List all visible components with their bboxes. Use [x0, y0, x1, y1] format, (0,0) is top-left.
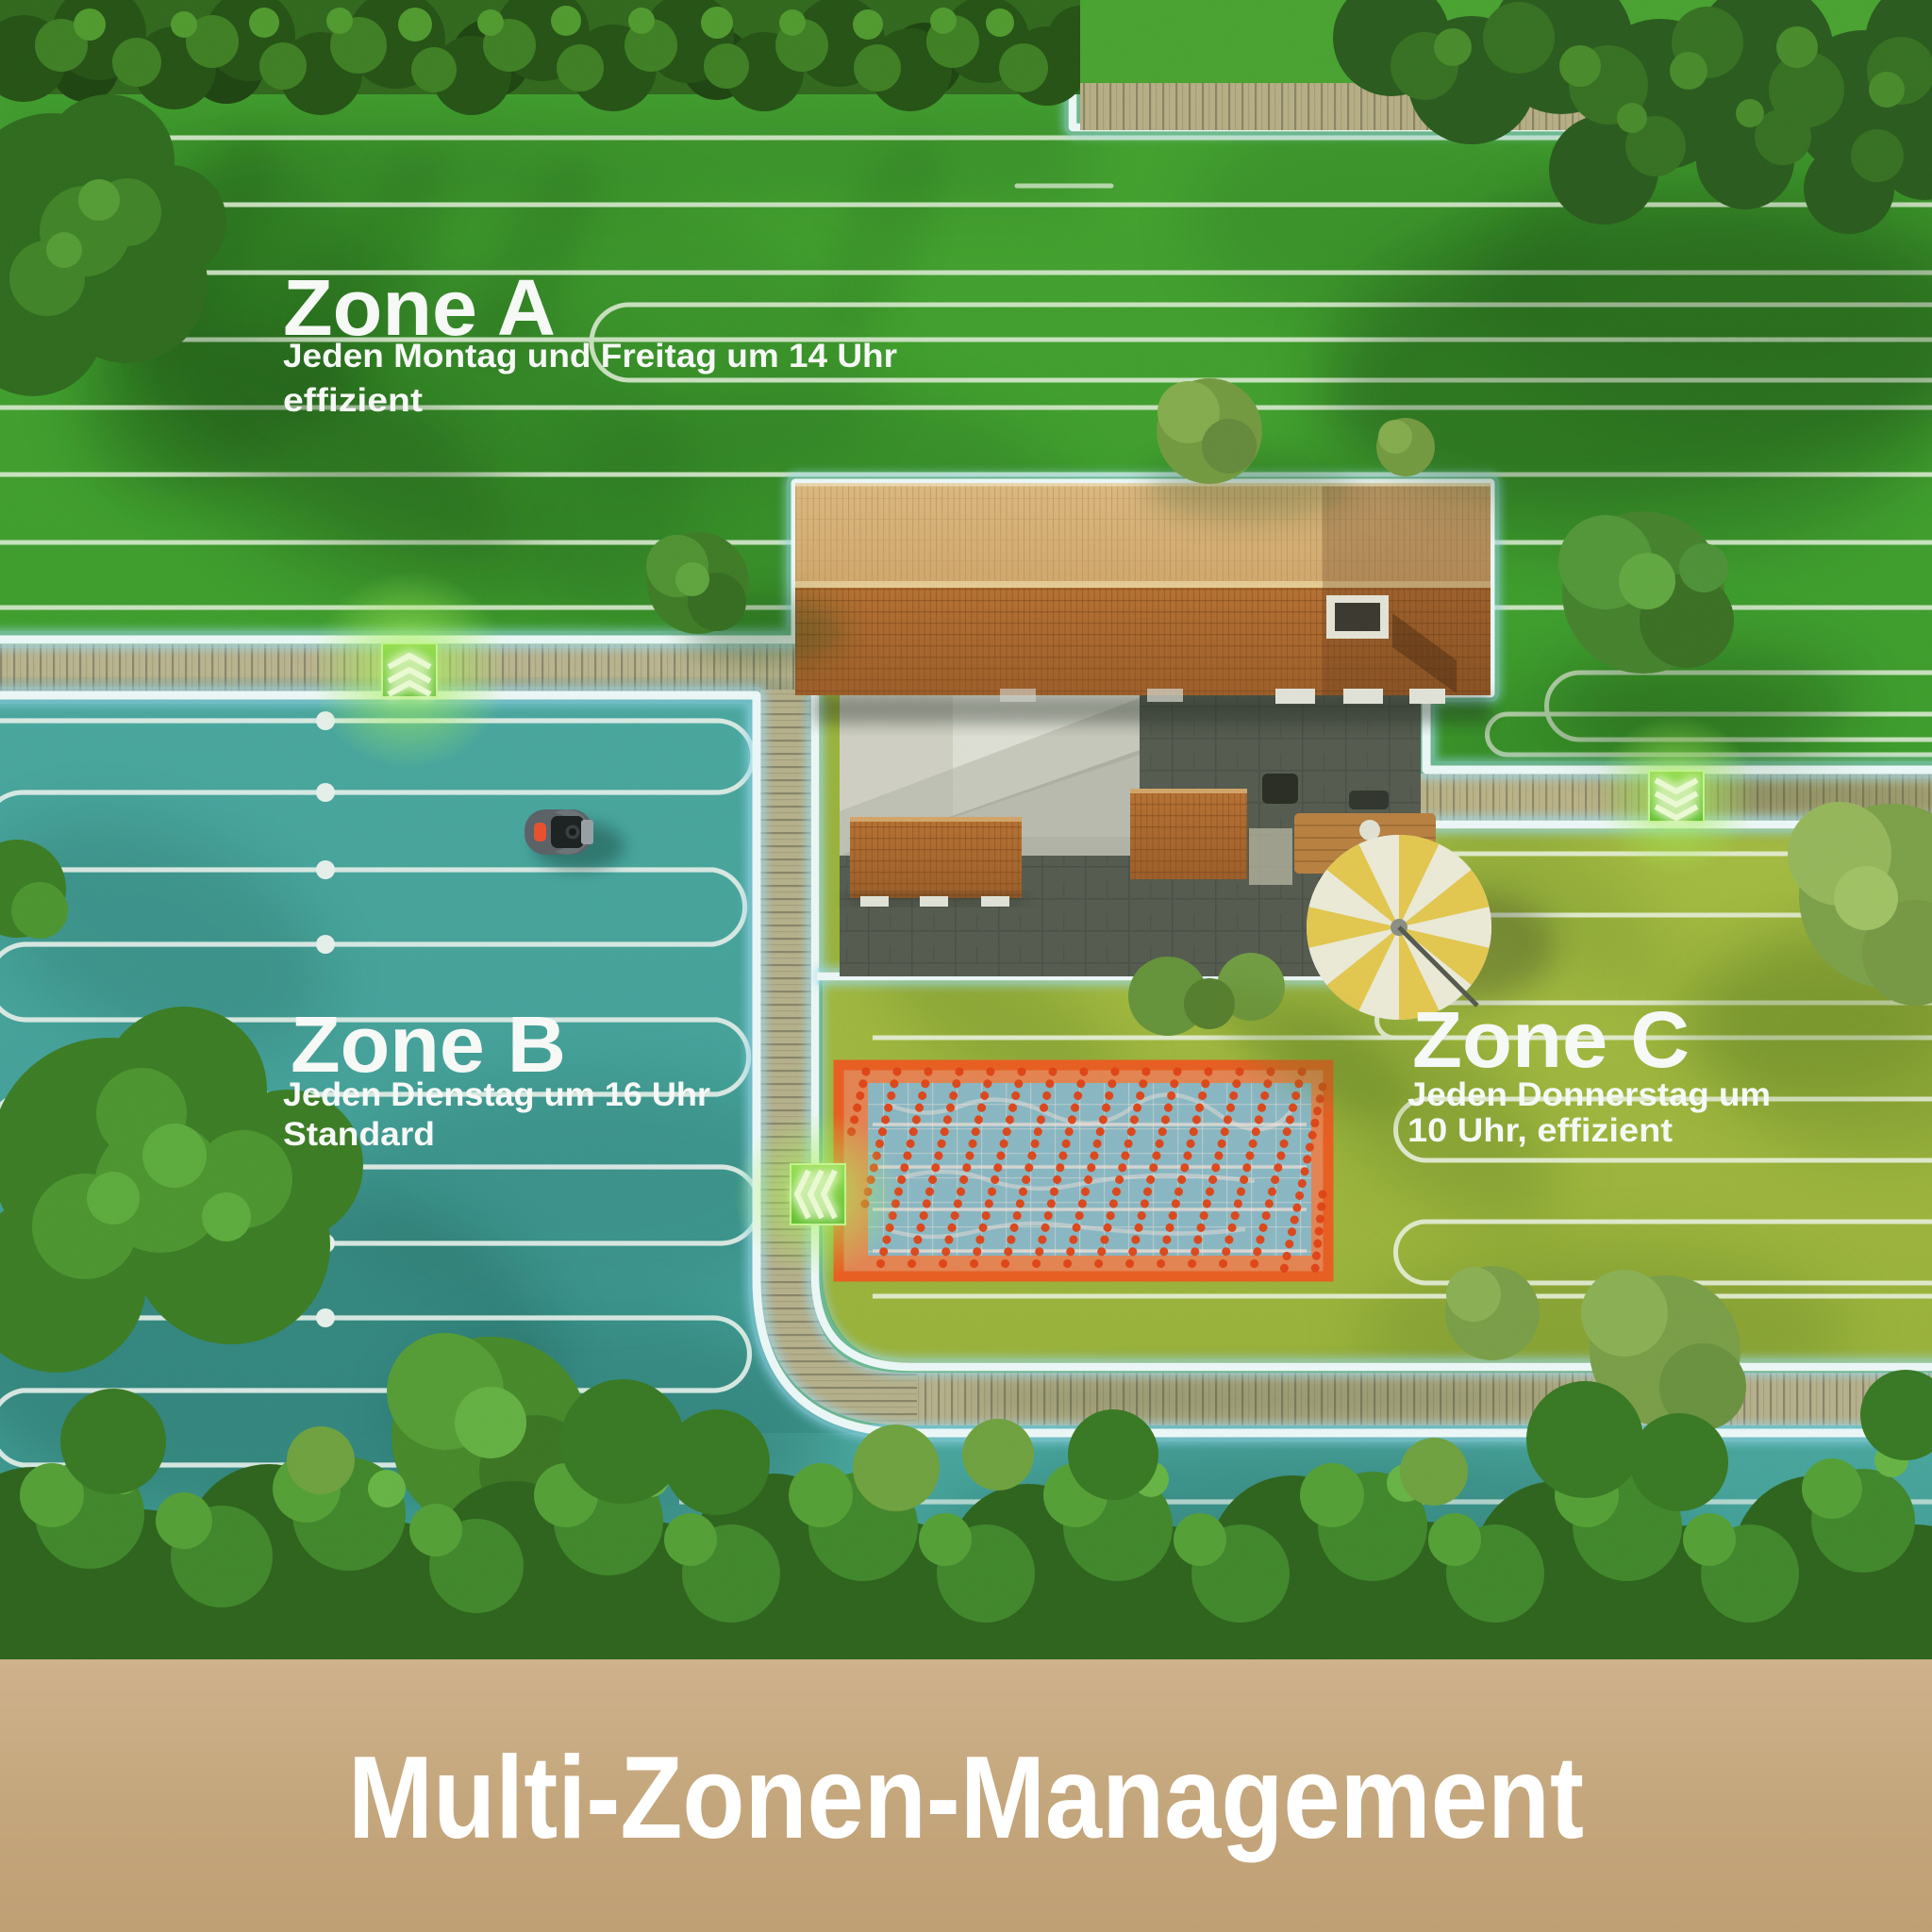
svg-text:Multi-Zonen-Management: Multi-Zonen-Management: [348, 1733, 1584, 1863]
